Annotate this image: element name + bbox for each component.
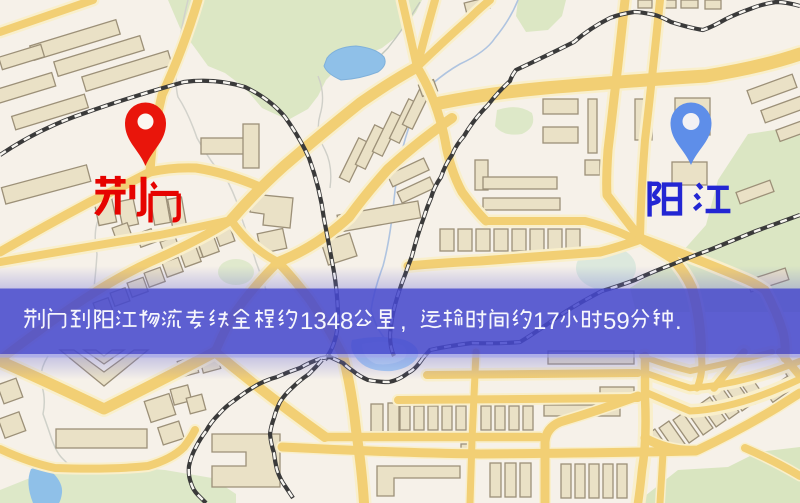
svg-text:59: 59 (603, 308, 630, 335)
svg-text:17: 17 (533, 308, 560, 335)
svg-text:,: , (400, 308, 407, 335)
svg-text:1348: 1348 (300, 308, 353, 335)
svg-text:.: . (675, 308, 682, 335)
